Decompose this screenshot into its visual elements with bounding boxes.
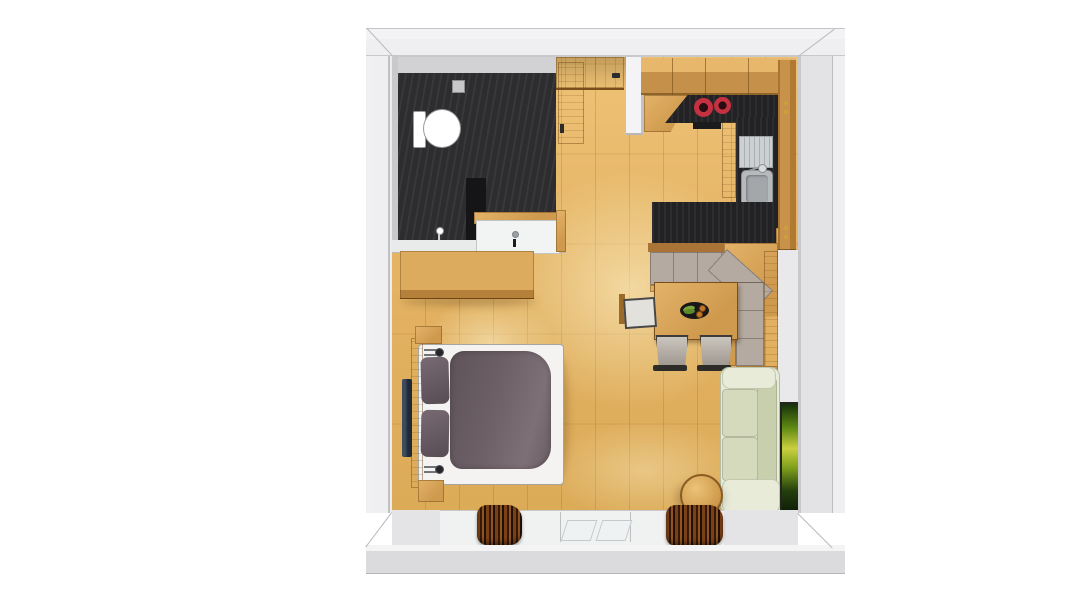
cabinet-divider: [672, 58, 673, 95]
curtain: [477, 505, 522, 545]
wall-bottom: [366, 545, 845, 574]
reading-lamp-head: [435, 348, 444, 357]
dining-chair: [655, 335, 689, 369]
chair-backrest: [653, 365, 687, 371]
sofa-seat-cushion: [722, 389, 758, 437]
pillow: [420, 357, 449, 405]
sofa-armrest: [722, 367, 776, 389]
bathroom-door-handle: [560, 124, 564, 133]
curtain: [666, 505, 723, 546]
wall-vent: [452, 80, 465, 93]
bench-back-top: [648, 243, 724, 252]
kitchen-upper-cabinets: [641, 58, 796, 95]
bar-counter: [652, 202, 780, 245]
headboard-ledge: [415, 326, 442, 344]
wall-left: [366, 56, 392, 513]
entrance-door-handle: [612, 73, 620, 78]
burner-icon: [694, 98, 713, 117]
floor-plan-render: [0, 0, 1070, 601]
corner-miter: [365, 512, 392, 547]
duvet: [450, 351, 551, 469]
cabinet-handle: [784, 226, 788, 230]
toilet-icon: [423, 109, 461, 148]
vanity-side-panel: [556, 210, 566, 252]
cabinet-handle: [784, 110, 788, 114]
reading-lamp-head: [435, 465, 444, 474]
window-frame-line: [630, 512, 631, 542]
counter-side-panel: [722, 122, 736, 198]
hob-knob-strip: [693, 122, 721, 129]
cabinet-handle: [784, 235, 788, 239]
sofa-armrest: [722, 479, 780, 513]
vanity-faucet: [513, 239, 516, 247]
burner-icon: [714, 97, 731, 114]
vanity-faucet-dot: [512, 231, 519, 238]
corner-miter: [797, 513, 832, 548]
wall-tv: [402, 379, 412, 457]
sink-faucet: [758, 164, 767, 173]
dining-chair-left: [623, 297, 657, 329]
bench-right-cushion: [736, 282, 764, 366]
dining-chair: [699, 335, 733, 369]
wall-top: [366, 28, 845, 57]
sink-drainboard: [739, 136, 773, 168]
tall-cabinet: [778, 60, 796, 250]
pillow: [421, 410, 450, 457]
headboard-ledge: [418, 480, 444, 502]
vanity-counter: [476, 220, 560, 254]
cabinet-divider: [748, 58, 749, 95]
cabinet-handle: [784, 101, 788, 105]
dresser: [400, 251, 534, 299]
sofa-seat-cushion: [722, 437, 758, 481]
bench-outer-right: [764, 251, 778, 375]
wall-right: [798, 56, 845, 513]
cabinet-divider: [705, 58, 706, 95]
orange-fruit: [696, 311, 703, 318]
